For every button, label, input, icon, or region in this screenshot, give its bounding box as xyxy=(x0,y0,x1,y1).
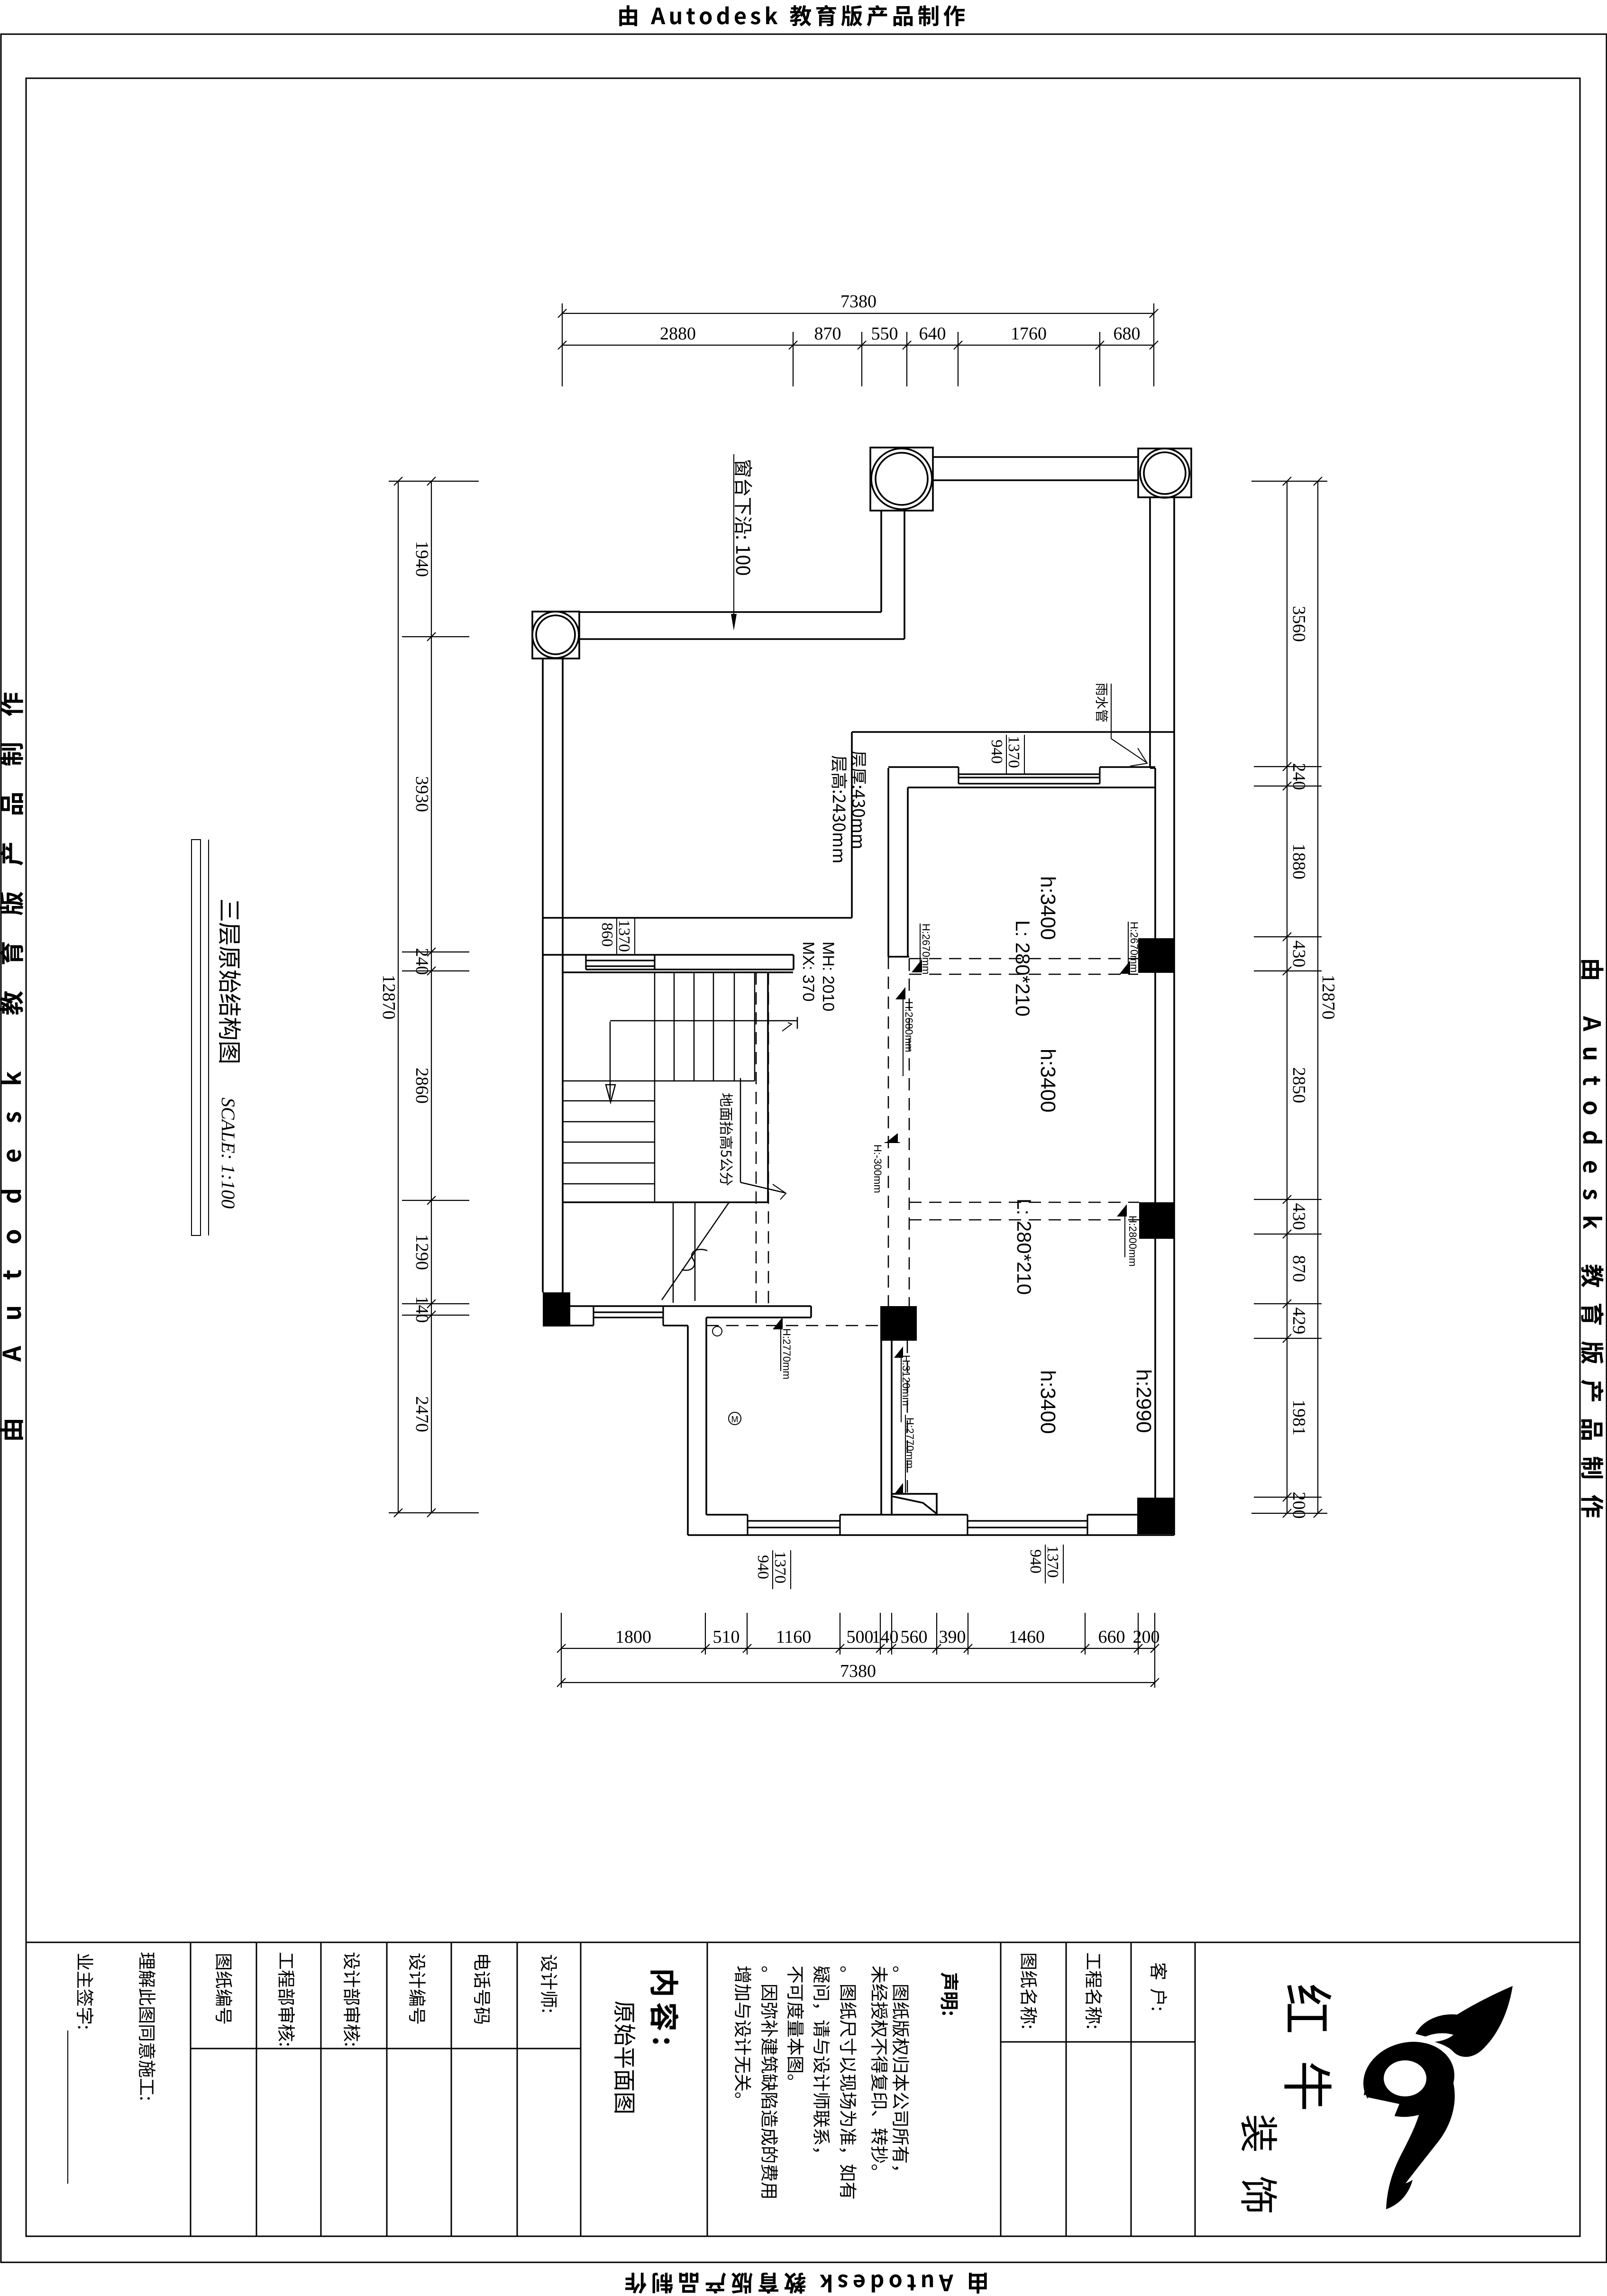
svg-text:1370: 1370 xyxy=(771,1551,789,1583)
svg-text:MX: 370: MX: 370 xyxy=(799,942,817,1002)
svg-text:860: 860 xyxy=(598,923,616,947)
svg-text:L: 280*210: L: 280*210 xyxy=(1013,1198,1035,1295)
svg-text:550: 550 xyxy=(871,324,898,344)
svg-text:H:2770mm: H:2770mm xyxy=(781,1328,793,1380)
svg-text:3930: 3930 xyxy=(412,776,432,812)
svg-text:7380: 7380 xyxy=(840,292,877,311)
svg-text:L: 280*210: L: 280*210 xyxy=(1012,920,1034,1016)
svg-text:200: 200 xyxy=(1133,1627,1160,1647)
svg-text:870: 870 xyxy=(814,324,841,344)
svg-text:2470: 2470 xyxy=(412,1396,432,1432)
svg-text:430: 430 xyxy=(1289,941,1309,968)
svg-text:H:2770mm: H:2770mm xyxy=(904,1418,916,1469)
svg-text:1370: 1370 xyxy=(615,920,633,952)
svg-text:1460: 1460 xyxy=(1009,1627,1045,1647)
svg-text:140: 140 xyxy=(412,1296,432,1323)
svg-text:430: 430 xyxy=(1289,1203,1309,1230)
svg-text:870: 870 xyxy=(1289,1255,1309,1282)
svg-text:1940: 1940 xyxy=(412,541,432,577)
svg-text:390: 390 xyxy=(939,1627,966,1647)
svg-text:3560: 3560 xyxy=(1289,606,1309,642)
svg-text:240: 240 xyxy=(1289,763,1309,790)
svg-text:1760: 1760 xyxy=(1011,324,1047,344)
svg-text:SCALE: 1:100: SCALE: 1:100 xyxy=(218,1098,239,1208)
svg-text:429: 429 xyxy=(1289,1308,1309,1335)
svg-text:H:2670mm: H:2670mm xyxy=(920,924,932,975)
svg-text:h:3400: h:3400 xyxy=(1036,1370,1059,1434)
svg-text:500: 500 xyxy=(847,1627,874,1647)
svg-text:H:2800mm: H:2800mm xyxy=(1127,1216,1139,1267)
svg-text:H:3120mm: H:3120mm xyxy=(900,1355,912,1406)
svg-text:H:2680mm: H:2680mm xyxy=(903,1001,915,1052)
svg-text:1880: 1880 xyxy=(1289,843,1309,879)
svg-text:12870: 12870 xyxy=(1318,975,1338,1020)
svg-text:680: 680 xyxy=(1114,324,1141,344)
svg-text:240: 240 xyxy=(412,948,432,975)
svg-text:7380: 7380 xyxy=(840,1661,876,1681)
svg-text:200: 200 xyxy=(1289,1492,1309,1519)
svg-text:640: 640 xyxy=(919,324,946,344)
svg-text:h:3400: h:3400 xyxy=(1036,876,1059,940)
svg-text:560: 560 xyxy=(901,1627,928,1647)
svg-text:MH: 2010: MH: 2010 xyxy=(819,942,837,1011)
svg-text:H:2670mm: H:2670mm xyxy=(1128,922,1140,973)
svg-text:M: M xyxy=(731,1415,739,1424)
svg-text:12870: 12870 xyxy=(379,975,399,1020)
svg-text:510: 510 xyxy=(713,1627,740,1647)
svg-text:1290: 1290 xyxy=(412,1234,432,1270)
svg-text:1800: 1800 xyxy=(615,1627,651,1647)
svg-text:H:-300mm: H:-300mm xyxy=(872,1144,884,1193)
svg-text:h:3400: h:3400 xyxy=(1036,1049,1059,1113)
svg-text:h:2990: h:2990 xyxy=(1132,1369,1155,1433)
svg-text:1370: 1370 xyxy=(1005,736,1023,768)
svg-text:1370: 1370 xyxy=(1044,1546,1061,1578)
svg-text:2860: 2860 xyxy=(412,1068,432,1104)
svg-text:940: 940 xyxy=(988,740,1005,764)
svg-text:2880: 2880 xyxy=(660,324,696,344)
svg-text:140: 140 xyxy=(872,1627,899,1647)
svg-text:940: 940 xyxy=(754,1555,772,1579)
svg-text:940: 940 xyxy=(1027,1549,1044,1573)
svg-text:1160: 1160 xyxy=(776,1627,812,1647)
svg-text:1981: 1981 xyxy=(1289,1400,1309,1436)
svg-text:2850: 2850 xyxy=(1289,1067,1309,1103)
svg-text:660: 660 xyxy=(1098,1627,1125,1647)
